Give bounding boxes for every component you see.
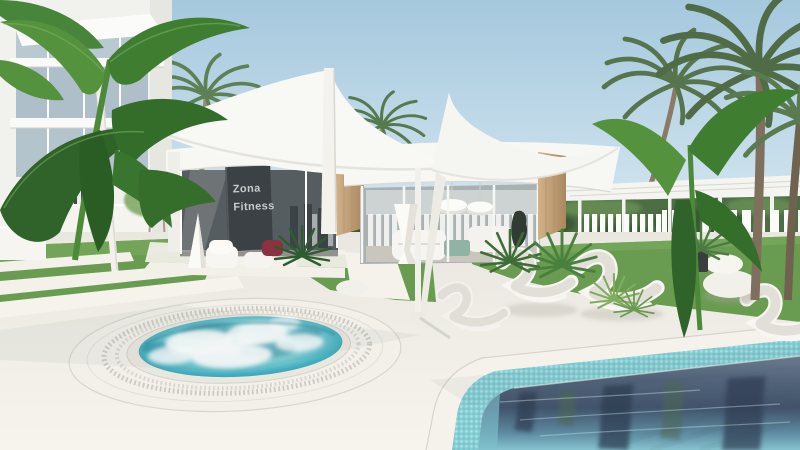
mast-base [411,312,425,319]
sign-text-line2: Fitness [233,200,275,213]
sail-mast [415,168,421,316]
render-canvas: Zona Fitness [0,0,800,450]
pebble-stone [703,270,757,298]
sign-text-line1: Zona [233,183,262,196]
pebble-stone [705,254,743,274]
pool-scene: Zona Fitness [0,0,800,450]
lounge-sofa [468,226,512,252]
pebble-stone [336,280,368,296]
